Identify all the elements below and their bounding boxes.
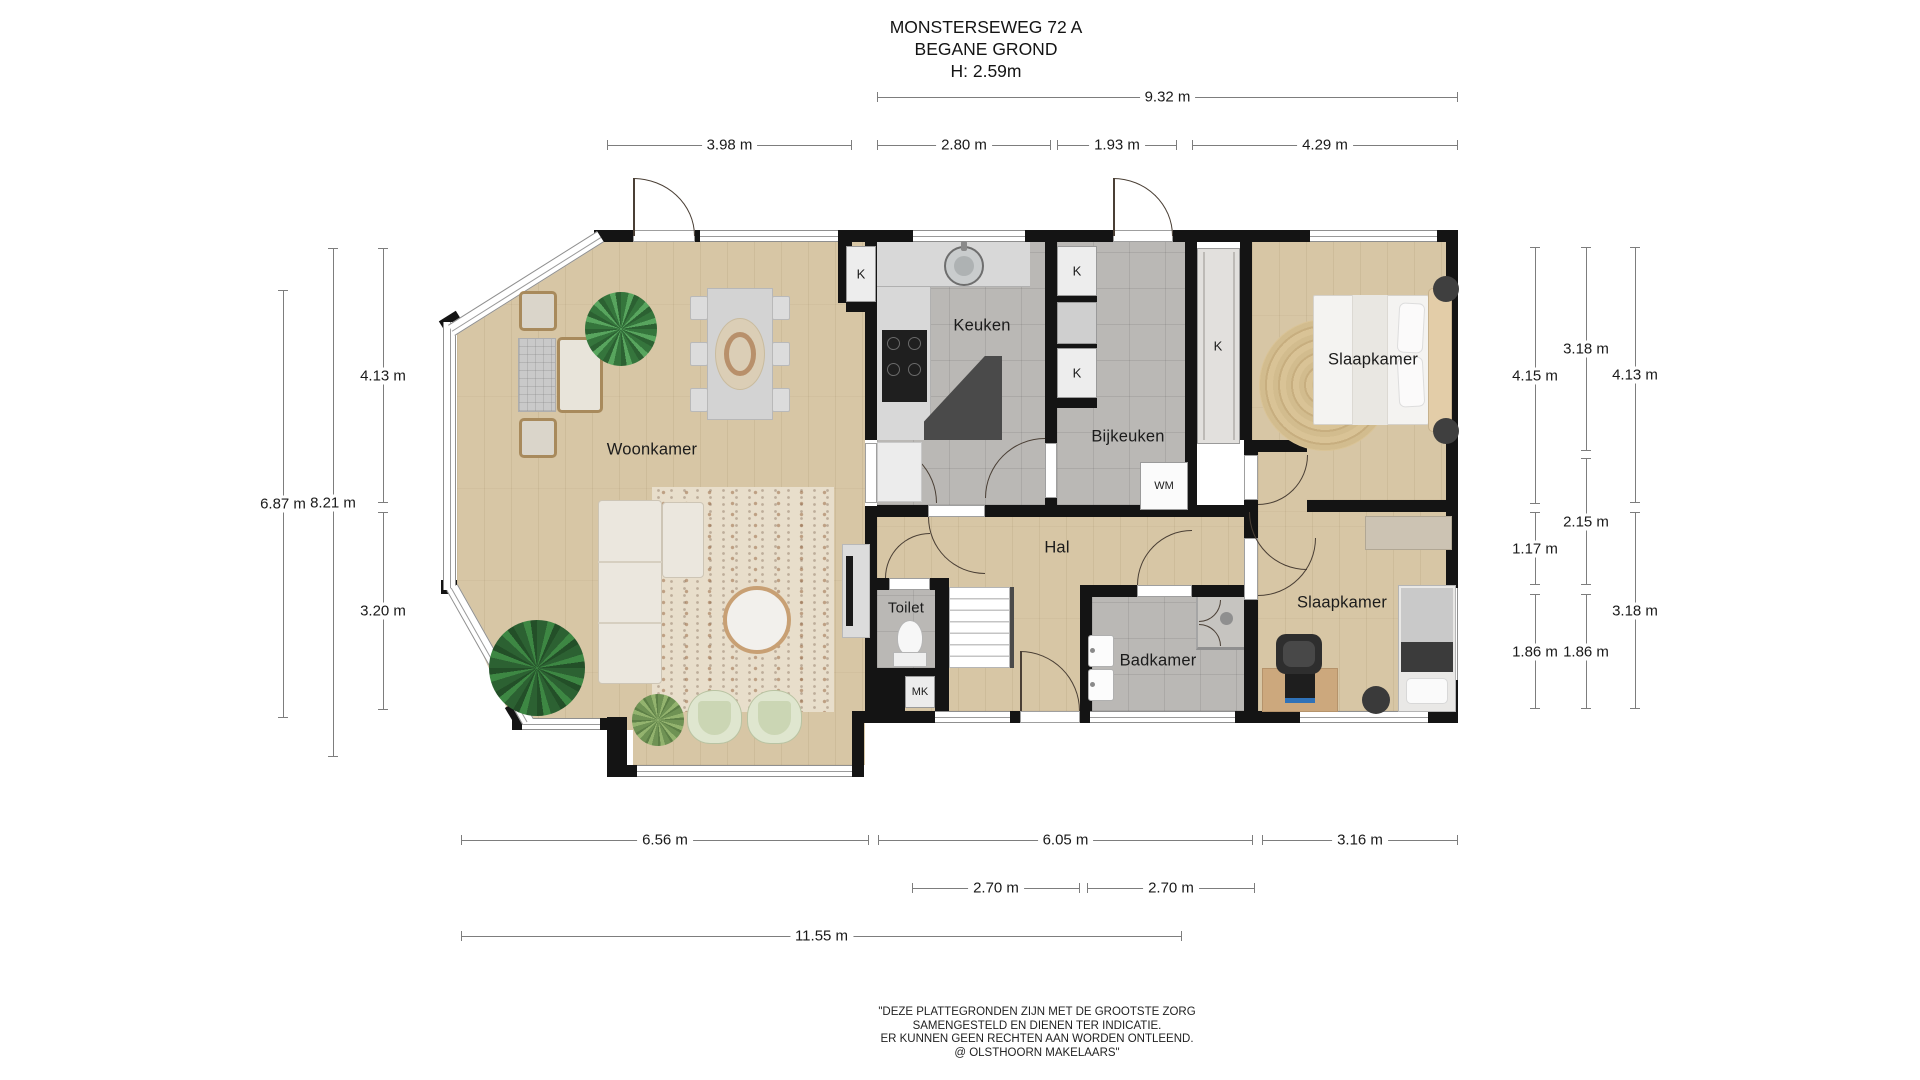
dimension-top-total: 9.32 m [877,91,1458,103]
single-bed-blanket [1401,642,1453,672]
table-runner-inner [724,332,756,376]
staircase-side-wall [1010,587,1014,668]
disclaimer-line-1: "DEZE PLATTEGRONDEN ZIJN MET DE GROOTSTE… [878,1006,1195,1020]
dimension-tick [1581,584,1591,585]
dimension-top-woonkamer: 3.98 m [607,139,852,151]
wall-badkamer-top-a [1080,585,1137,597]
dimension-tick [378,502,388,503]
nightstand-2 [1433,418,1459,444]
dimension-tick [1530,594,1540,595]
dimension-bottom-woonkamer: 6.56 m [461,834,869,846]
dimension-label: 8.21 m [305,494,361,511]
title-block: MONSTERSEWEG 72 A BEGANE GROND H: 2.59m [890,16,1083,82]
door-leaf-woonkamer-top [633,178,635,236]
dimension-tick [1457,92,1458,102]
door-woonkamer [865,443,877,503]
label-toilet: Toilet [888,600,924,617]
kitchen-sink-basin [954,256,974,276]
wall-closet-slaapkamer1 [1240,242,1252,440]
headboard [1428,288,1452,432]
disclaimer-line-4: @ OLSTHOORN MAKELAARS" [878,1047,1195,1061]
page-title-height: H: 2.59m [890,60,1083,82]
dimension-label: 11.55 m [790,928,853,945]
label-keuken: Keuken [953,317,1010,336]
palm-plant [585,292,657,366]
wall-keuken-bottom-b [985,505,1050,517]
label-slaapkamer-2: Slaapkamer [1297,594,1387,613]
door-slaapkamer-1 [1244,455,1258,500]
closet-stub-wall [1045,398,1097,408]
dimension-tick [1581,247,1591,248]
dimension-tick [1181,931,1182,941]
dimension-label: 1.17 m [1507,540,1563,557]
floorplan-page: MONSTERSEWEG 72 A BEGANE GROND H: 2.59m [0,0,1920,1080]
dimension-right-col1-top: 4.15 m [1529,247,1541,504]
laptop-screen-edge [1285,698,1315,703]
sofa-cushion-line-1 [598,561,662,563]
dimension-label: 3.18 m [1607,602,1663,619]
armchair-1 [519,291,557,331]
wall-slaapkamer2-top [1307,500,1458,512]
wall-block-mk [865,674,905,711]
dimension-tick [278,290,288,291]
dimension-label: 4.29 m [1297,137,1353,154]
faucet-1 [1090,648,1095,653]
dimension-right-col3-top: 4.13 m [1629,247,1641,503]
dimension-label: 9.32 m [1140,89,1196,106]
dimension-tick [1087,883,1088,893]
dimension-label: 3.18 m [1558,341,1614,358]
door-toilet [889,578,930,590]
dimension-label: 4.13 m [355,367,411,384]
hob-burner-1 [887,337,900,350]
small-plant [632,694,684,746]
wardrobe [1365,516,1452,550]
label-hal: Hal [1044,539,1069,558]
label-closet-bijkeuken-mid: K [1073,366,1082,381]
dimension-tick [1630,247,1640,248]
kitchen-appliance [877,442,922,502]
label-closet-bijkeuken-top: K [1073,264,1082,279]
armchair-2 [519,418,557,458]
tv [846,556,853,626]
closet-tall-line-1 [1203,252,1205,440]
dimension-tick [878,835,879,845]
large-plant [489,620,585,716]
label-woonkamer: Woonkamer [607,441,697,460]
laptop [1285,672,1315,700]
desk-chair-seat [1283,641,1315,667]
dimension-tick [378,709,388,710]
hob-burner-4 [908,363,921,376]
dimension-tick [1457,140,1458,150]
door-badkamer [1137,585,1192,597]
dimension-tick [1630,512,1640,513]
dimension-label: 4.15 m [1507,367,1563,384]
closet-tall-line-2 [1233,252,1235,440]
door-keuken-bijkeuken [1045,443,1057,498]
hob-burner-3 [887,363,900,376]
label-bijkeuken: Bijkeuken [1091,428,1164,447]
dimension-right-col2-mid: 2.15 m [1580,458,1592,585]
dimension-tick [877,92,878,102]
wall-closet-woonkamer-stub [846,302,877,312]
dimension-tick [1581,594,1591,595]
single-bed-mattress [1401,588,1453,642]
nightstand-1 [1433,276,1459,302]
closet-bijkeuken-shelf [1057,302,1097,344]
disclaimer-line-2: SAMENGESTELD EN DIENEN TER INDICATIE. [878,1020,1195,1034]
window-keuken-top [913,230,1025,242]
dimension-bottom-total: 11.55 m [461,930,1182,942]
sofa-chaise [662,502,704,578]
dimension-label: 2.80 m [936,137,992,154]
dimension-top-bijkeuken: 1.93 m [1057,139,1177,151]
dimension-bottom-hal: 6.05 m [878,834,1253,846]
dimension-tick [1630,502,1640,503]
dimension-label: 3.98 m [702,137,758,154]
wall-hal-east-c [1244,600,1258,711]
dimension-label: 4.13 m [1607,367,1663,384]
pillow-1 [1397,302,1426,353]
dimension-bottom-entree-left: 2.70 m [912,882,1080,894]
bay-cover-bottom2 [453,730,633,770]
dimension-left-lower: 3.20 m [377,512,389,710]
sofa [598,500,662,684]
kitchen-tap [961,241,967,251]
dimension-tick [868,835,869,845]
dimension-tick [1050,140,1051,150]
label-badkamer: Badkamer [1120,652,1197,671]
wall-keuken-bottom-a [877,505,928,517]
dimension-left-inner: 6.87 m [277,290,289,718]
staircase [949,587,1010,668]
dimension-tick [877,140,878,150]
stool [1362,686,1390,714]
tub-chair-1-seat [698,701,731,735]
window-woonkamer-bottom [637,765,852,777]
side-table [518,338,556,412]
dimension-tick [1630,708,1640,709]
dining-chair-6 [772,388,790,412]
door-keuken-hal [928,505,985,517]
dimension-right-col3-bottom: 3.18 m [1629,512,1641,709]
dimension-label: 1.86 m [1558,643,1614,660]
wall-toilet-right [935,578,949,711]
dimension-label: 2.70 m [1143,880,1199,897]
window-woonkamer-bottom-left [522,718,600,730]
dimension-tick [328,756,338,757]
dimension-label: 2.15 m [1558,513,1614,530]
dimension-label: 6.56 m [637,832,693,849]
window-woonkamer-top [700,230,838,242]
dimension-tick [1581,708,1591,709]
dimension-label: 1.86 m [1507,643,1563,660]
dimension-tick [1581,450,1591,451]
wall-keuken-bijkeuken-upper [1045,242,1057,443]
dining-chair-5 [772,342,790,366]
dimension-tick [912,883,913,893]
label-slaapkamer-1: Slaapkamer [1328,351,1418,370]
dimension-right-col1-mid: 1.17 m [1529,512,1541,585]
label-closet-woonkamer: K [857,267,866,282]
label-closet-tall: K [1214,339,1223,354]
dining-chair-4 [772,296,790,320]
dimension-bottom-entree-right: 2.70 m [1087,882,1255,894]
dimension-label: 6.87 m [255,496,311,513]
dimension-tick [328,248,338,249]
dimension-tick [607,140,608,150]
dimension-label: 1.93 m [1089,137,1145,154]
sofa-cushion-line-2 [598,622,662,624]
dimension-tick [1176,140,1177,150]
dimension-tick [1530,247,1540,248]
page-title-floor: BEGANE GROND [890,38,1083,60]
hob-burner-2 [908,337,921,350]
dimension-bottom-slaapkamer: 3.16 m [1262,834,1458,846]
dimension-tick [1530,512,1540,513]
window-slaapkamer1-top [1310,230,1437,242]
dimension-tick [1457,835,1458,845]
page-title-address: MONSTERSEWEG 72 A [890,16,1083,38]
dimension-tick [1530,503,1540,504]
coffee-table [723,586,791,654]
dimension-tick [1252,835,1253,845]
label-wasmachine: WM [1154,480,1174,492]
disclaimer: "DEZE PLATTEGRONDEN ZIJN MET DE GROOTSTE… [878,1006,1195,1060]
dimension-tick [278,717,288,718]
door-swing-woonkamer-top [633,178,695,236]
dimension-tick [1192,140,1193,150]
dimension-left-upper: 4.13 m [377,248,389,503]
dimension-tick [461,931,462,941]
toilet-tank [893,652,927,667]
single-bed-pillow [1406,678,1448,704]
window-badkamer-bottom [1090,711,1235,723]
dimension-label: 6.05 m [1038,832,1094,849]
dimension-right-col2-top: 3.18 m [1580,247,1592,451]
dimension-tick [1262,835,1263,845]
dining-chair-1 [690,296,708,320]
dimension-right-col1-bottom: 1.86 m [1529,594,1541,709]
dimension-label: 3.16 m [1332,832,1388,849]
door-swing-bijkeuken-top [1113,178,1173,236]
dimension-top-slaapkamer: 4.29 m [1192,139,1458,151]
disclaimer-line-3: ER KUNNEN GEEN RECHTEN AAN WORDEN ONTLEE… [878,1033,1195,1047]
dimension-tick [851,140,852,150]
dining-chair-2 [690,342,708,366]
dimension-right-col2-bottom: 1.86 m [1580,594,1592,709]
dimension-label: 2.70 m [968,880,1024,897]
dimension-tick [461,835,462,845]
dimension-tick [1530,584,1540,585]
dimension-tick [1057,140,1058,150]
door-leaf-front [1020,651,1022,711]
dimension-label: 3.20 m [355,603,411,620]
door-slaapkamer-2 [1244,538,1258,600]
wall-badkamer-top-b [1192,585,1244,597]
faucet-2 [1090,682,1095,687]
dimension-tick [1254,883,1255,893]
dimension-tick [1079,883,1080,893]
dining-chair-3 [690,388,708,412]
front-door [1020,711,1080,723]
window-bay-left [443,322,456,590]
tub-chair-2-seat [758,701,791,735]
dimension-tick [1581,458,1591,459]
dimension-tick [378,248,388,249]
dimension-left-outer: 8.21 m [327,248,339,757]
window-slaapkamer2-bottom [1300,711,1428,723]
dimension-top-keuken: 2.80 m [877,139,1051,151]
dimension-tick [378,512,388,513]
toilet-bowl [897,620,923,656]
label-meterkast: MK [912,686,929,698]
door-leaf-bijkeuken-top [1113,178,1115,236]
window-hal-bottom [935,711,1010,723]
dimension-tick [1530,708,1540,709]
shower-drain [1220,612,1233,625]
